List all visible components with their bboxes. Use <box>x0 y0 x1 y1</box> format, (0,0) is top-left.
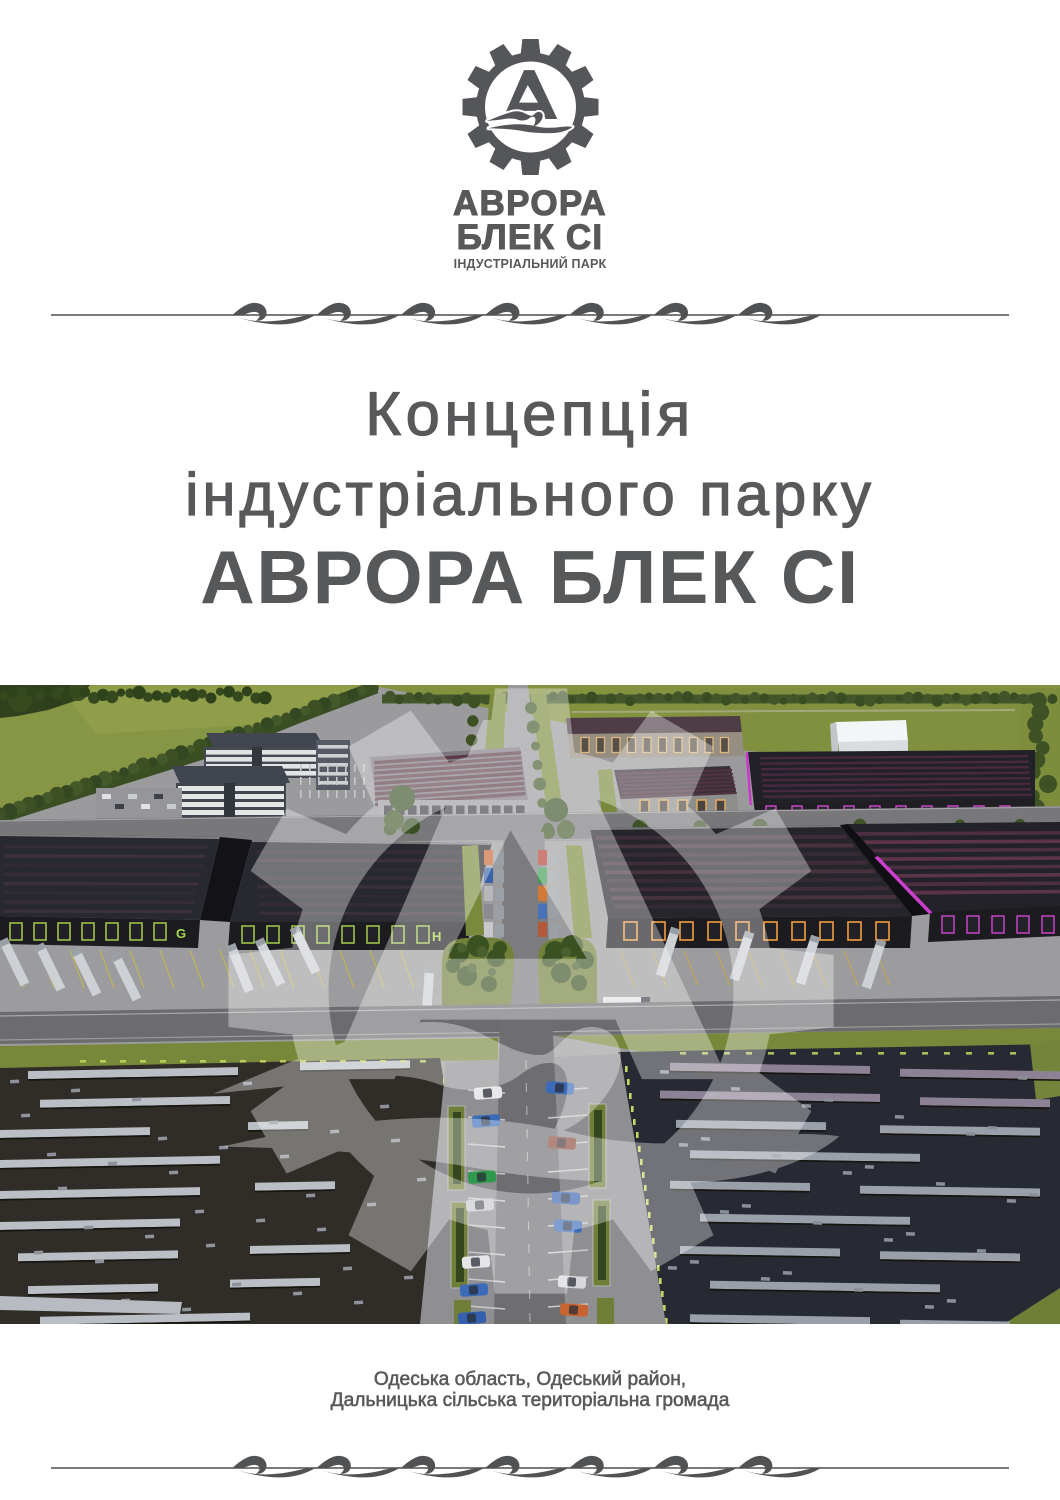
svg-text:G: G <box>176 926 186 941</box>
